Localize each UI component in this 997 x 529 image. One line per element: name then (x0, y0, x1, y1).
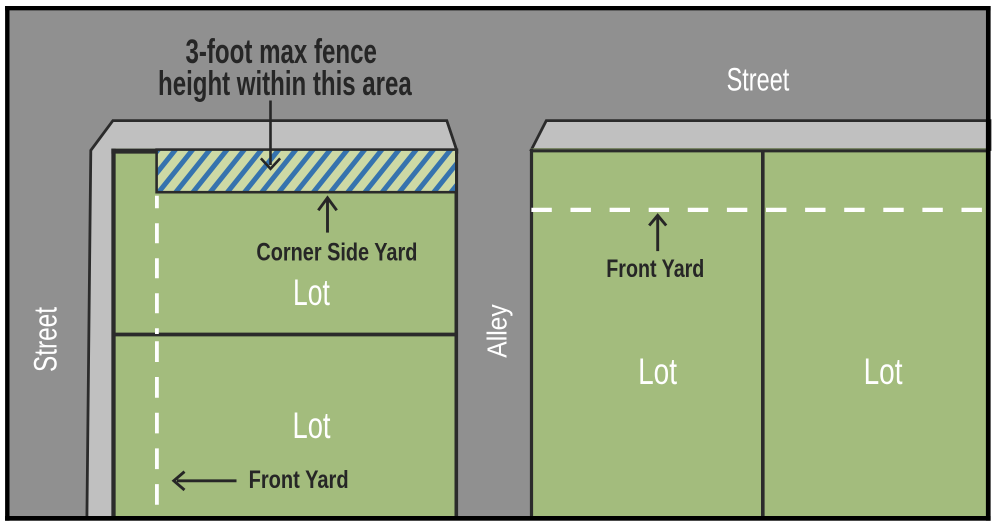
svg-text:Corner Side Yard: Corner Side Yard (256, 239, 417, 267)
svg-text:Street: Street (727, 62, 790, 98)
svg-text:Front Yard: Front Yard (249, 466, 349, 494)
svg-text:Front Yard: Front Yard (606, 255, 704, 283)
svg-text:Lot: Lot (864, 351, 903, 392)
svg-text:height within this area: height within this area (158, 65, 412, 103)
svg-text:Alley: Alley (482, 304, 513, 358)
svg-text:Lot: Lot (293, 272, 330, 313)
svg-text:Lot: Lot (293, 405, 332, 446)
svg-text:Street: Street (28, 307, 64, 372)
svg-text:Lot: Lot (638, 351, 677, 392)
